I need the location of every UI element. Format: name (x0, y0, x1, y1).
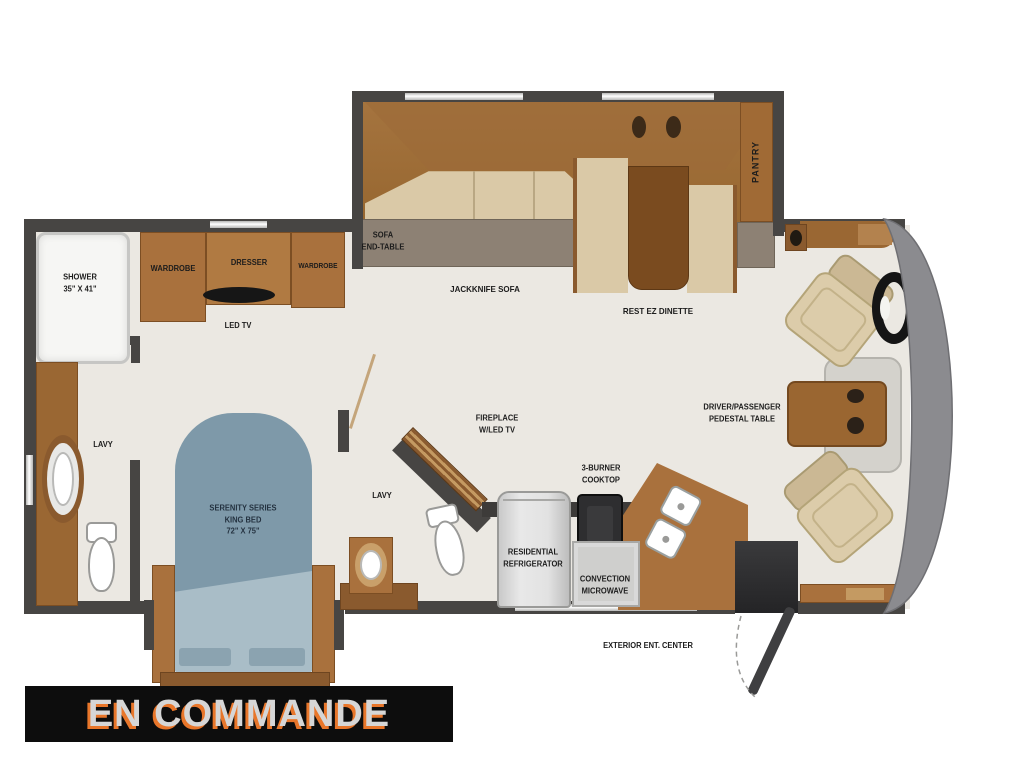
bed-pillow (249, 648, 305, 666)
nightstand-left (152, 565, 175, 683)
rv-floorplan: SHOWER 35" X 41" WARDROBE DRESSER WARDRO… (0, 0, 1024, 768)
led-tv (203, 287, 275, 303)
exterior-ent-label: EXTERIOR ENT. CENTER (603, 640, 693, 652)
dinette-bench-left (573, 158, 628, 293)
window-left (26, 455, 33, 505)
dinette-bench-right (687, 185, 737, 293)
cooktop-surface (587, 506, 613, 542)
microwave (572, 541, 640, 607)
steering-wheel-icon (872, 272, 916, 344)
console-cup (790, 230, 802, 246)
sofa-end-table (357, 219, 578, 267)
wall-top-left (24, 219, 362, 232)
entry-step (800, 584, 900, 603)
cupholder (847, 417, 864, 434)
entry-step-inset (846, 588, 884, 600)
cab-console (785, 224, 807, 251)
slideout-wall-left (352, 91, 363, 269)
rear-sink-bowl (52, 452, 74, 506)
dinette-speaker (666, 116, 681, 138)
dinette-speaker (632, 116, 646, 138)
slideout-window (602, 93, 714, 100)
bed-footboard (160, 672, 330, 687)
entry-door (747, 606, 796, 696)
steering-hub (880, 296, 890, 320)
window-top (210, 221, 267, 228)
wall-left (24, 219, 36, 613)
pantry-base (737, 222, 775, 268)
pantry-cabinet (740, 102, 773, 222)
shower (36, 232, 130, 364)
fridge-handle (503, 499, 565, 501)
door-jamb (338, 410, 349, 452)
bed-slide-wall-left (144, 600, 154, 650)
nightstand-right (312, 565, 335, 683)
king-bed (175, 413, 312, 675)
wardrobe-right (291, 232, 345, 308)
toilet-mid-bowl (430, 518, 469, 579)
pedestal-table (787, 381, 887, 447)
microwave-door (578, 547, 634, 601)
bed-pillow (179, 648, 231, 666)
dashboard (800, 221, 895, 248)
exterior-ent-center (735, 541, 798, 613)
slideout-wall-right (773, 91, 784, 236)
cupholder (847, 389, 864, 403)
toilet-rear-bowl (88, 537, 115, 592)
mid-sink-bowl (360, 550, 382, 580)
wall-bath-divider (130, 460, 140, 606)
dinette-table (628, 166, 689, 290)
overhead-cabinet (363, 100, 774, 170)
status-banner-text: EN COMMANDE (88, 693, 390, 736)
slideout-window (405, 93, 523, 100)
wardrobe-left (140, 232, 206, 322)
refrigerator (497, 491, 571, 608)
dashboard-inset (858, 224, 892, 245)
wall-stub (131, 336, 140, 363)
status-banner: EN COMMANDE (25, 686, 453, 742)
